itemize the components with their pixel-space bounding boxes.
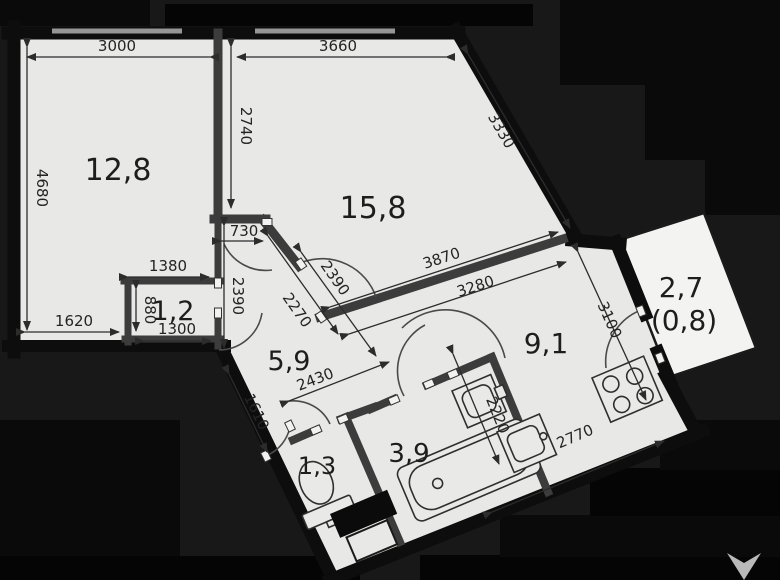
dim-2740: 2740 [237,107,255,145]
room-label-bathroom: 3,9 [388,439,429,469]
dim-1380: 1380 [149,257,187,275]
room-label-living: 12,8 [85,153,152,188]
room-label-balcony: 2,7 [659,271,704,304]
room-label-wc: 1,3 [298,452,336,480]
floor-plan-image: 3000 3660 2740 4680 3330 730 2390 2270 2… [0,0,780,580]
room-label-bedroom: 15,8 [340,191,407,226]
room-label-kitchen: 9,1 [524,327,569,360]
dim-1620: 1620 [55,312,93,330]
room-label-hall: 5,9 [268,346,311,377]
dim-4680: 4680 [33,169,51,207]
dim-3660: 3660 [319,37,357,55]
floor-plan-canvas: 3000 3660 2740 4680 3330 730 2390 2270 2… [0,0,780,580]
dim-730: 730 [230,222,259,240]
dim-2390-v: 2390 [229,277,247,315]
room-label-closet: 1,2 [152,296,195,327]
room-label-balcony-reduced: (0,8) [651,304,717,337]
dim-3000: 3000 [98,37,136,55]
